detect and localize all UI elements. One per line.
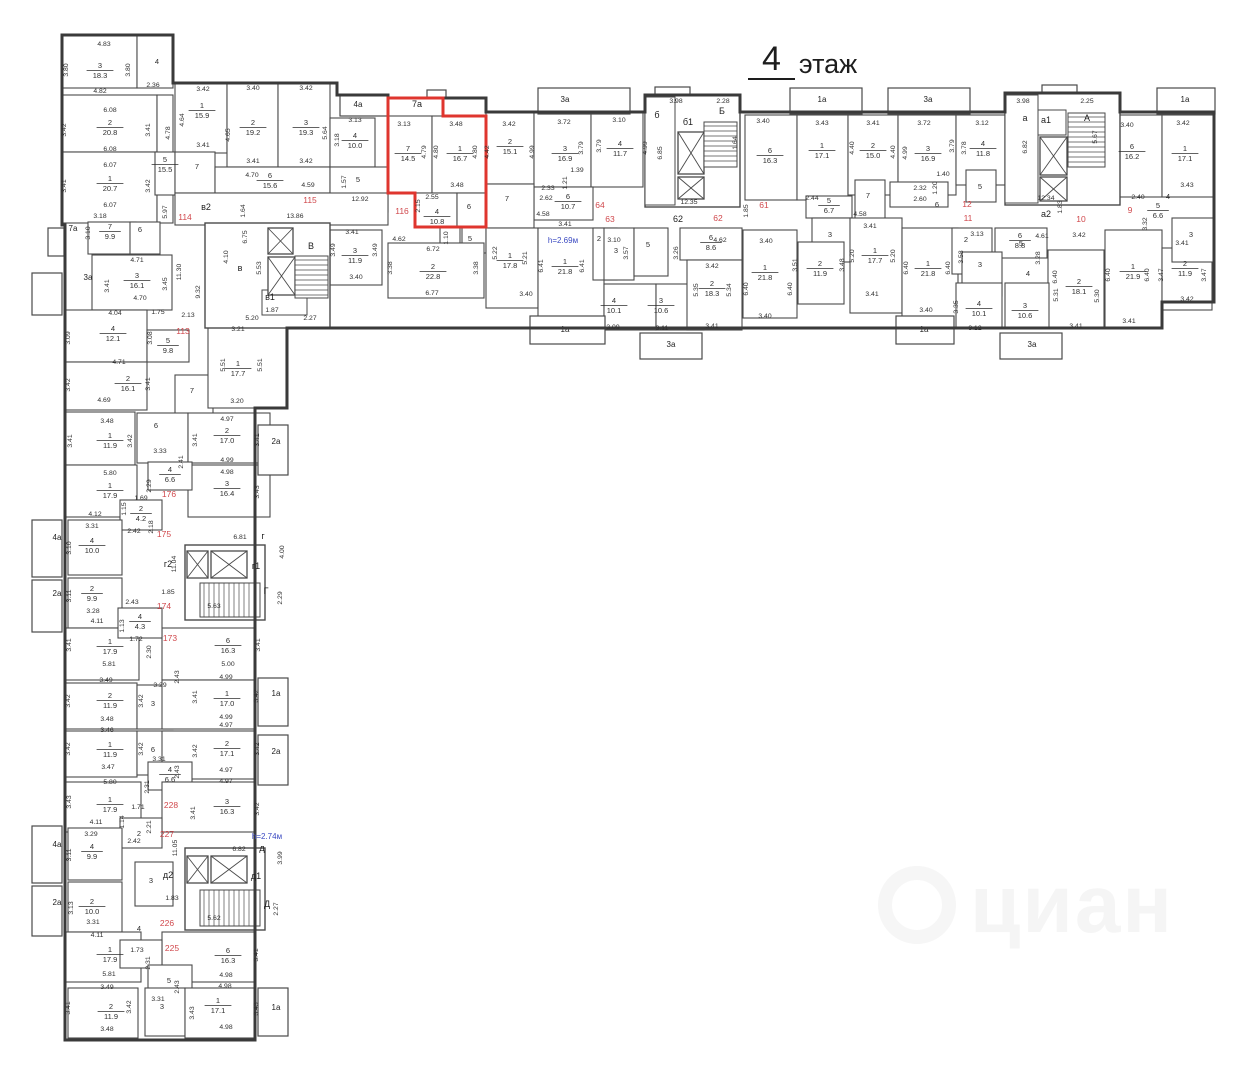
svg-text:4: 4 — [137, 924, 141, 933]
dimension-label: 3.10 — [66, 541, 73, 554]
dimension-label: 3.41 — [863, 223, 876, 230]
apartment-number: 64 — [595, 200, 605, 210]
svg-text:3: 3 — [151, 699, 155, 708]
room — [175, 375, 213, 417]
svg-text:16.3: 16.3 — [763, 156, 778, 165]
svg-text:4.3: 4.3 — [135, 622, 145, 631]
svg-text:4: 4 — [353, 131, 357, 140]
dimension-label: 3.41 — [1069, 323, 1082, 330]
room — [443, 98, 486, 116]
dimension-label: 4.40 — [890, 145, 897, 158]
svg-text:4а: 4а — [53, 840, 62, 849]
dimension-label: 3.40 — [519, 291, 532, 298]
dimension-label: 5.62 — [207, 915, 220, 922]
svg-text:16.3: 16.3 — [221, 646, 236, 655]
svg-text:15.9: 15.9 — [195, 111, 210, 120]
dimension-label: 1.75 — [151, 309, 164, 316]
svg-text:4: 4 — [1026, 269, 1030, 278]
dimension-label: 6.07 — [103, 202, 116, 209]
dimension-label: 2.43 — [125, 599, 138, 606]
svg-text:2: 2 — [139, 504, 143, 513]
dimension-label: 3.80 — [125, 63, 132, 76]
dimension-label: 2.41 — [178, 455, 185, 468]
dimension-label: 6.40 — [903, 261, 910, 274]
dimension-label: 3.49 — [330, 243, 337, 256]
dimension-label: 1.71 — [131, 804, 144, 811]
dimension-label: 1.21 — [562, 176, 569, 189]
svg-text:4: 4 — [138, 612, 142, 621]
svg-text:1: 1 — [820, 141, 824, 150]
svg-text:3: 3 — [1189, 230, 1193, 239]
dimension-label: 4.99 — [219, 714, 232, 721]
apartment-number: 175 — [157, 529, 171, 539]
dimension-label: 2.31 — [145, 956, 152, 969]
balcony — [538, 88, 630, 114]
dimension-label: 6.41 — [579, 259, 586, 272]
svg-text:3: 3 — [659, 296, 663, 305]
svg-text:16.1: 16.1 — [121, 384, 136, 393]
dimension-label: 2.43 — [174, 980, 181, 993]
svg-text:18.1: 18.1 — [1072, 287, 1087, 296]
dimension-label: 3.11 — [656, 325, 669, 332]
dimension-label: 4.79 — [421, 145, 428, 158]
dimension-label: 3.79 — [949, 139, 956, 152]
svg-text:19.3: 19.3 — [299, 128, 314, 137]
svg-text:6: 6 — [566, 192, 570, 201]
dimension-label: 1.13 — [119, 619, 126, 632]
svg-text:а: а — [1022, 113, 1027, 123]
svg-text:5: 5 — [827, 196, 831, 205]
svg-text:6: 6 — [768, 146, 772, 155]
dimension-label: 3.80 — [63, 63, 70, 76]
dimension-label: 4.97 — [219, 722, 232, 729]
dimension-label: 1.85 — [161, 589, 174, 596]
room-label: 56.6 — [1147, 201, 1169, 220]
dimension-label: 3.41 — [254, 433, 261, 446]
svg-text:1: 1 — [108, 945, 112, 954]
svg-text:2: 2 — [818, 259, 822, 268]
dimension-label: 3.42 — [253, 689, 260, 702]
dimension-label: 3.98 — [1016, 98, 1029, 105]
dimension-label: 3.58 — [958, 250, 965, 263]
dimension-label: 6.40 — [1105, 268, 1112, 281]
dimension-label: 3.13 — [397, 121, 410, 128]
dimension-label: 4.82 — [93, 88, 106, 95]
dimension-label: 6.41 — [538, 259, 545, 272]
dimension-label: 5.67 — [1092, 130, 1099, 143]
dimension-label: 1.57 — [341, 175, 348, 188]
dimension-label: 3.42 — [126, 1000, 133, 1013]
svg-text:17.9: 17.9 — [103, 491, 118, 500]
svg-text:3а: 3а — [84, 273, 93, 282]
apartment-number: 10 — [1076, 214, 1086, 224]
dimension-label: 4.69 — [97, 397, 110, 404]
room — [457, 193, 486, 227]
svg-text:6: 6 — [935, 200, 939, 209]
dimension-label: 3.41 — [345, 229, 358, 236]
svg-text:1: 1 — [508, 251, 512, 260]
dimension-label: 3.31 — [151, 996, 164, 1003]
svg-text:7: 7 — [406, 144, 410, 153]
svg-text:11.9: 11.9 — [104, 1012, 118, 1021]
svg-text:10.6: 10.6 — [654, 306, 669, 315]
dimension-label: 3.28 — [1035, 251, 1042, 264]
svg-text:2: 2 — [90, 897, 94, 906]
dimension-label: 3.79 — [578, 141, 585, 154]
svg-text:д1: д1 — [251, 871, 261, 881]
svg-text:17.1: 17.1 — [1178, 154, 1193, 163]
dimension-label: 4.11 — [90, 819, 103, 826]
dimension-label: 4.40 — [849, 141, 856, 154]
dimension-label: 2.55 — [425, 194, 438, 201]
dimension-label: 3.42 — [502, 121, 515, 128]
svg-text:7а: 7а — [69, 224, 78, 233]
svg-text:18.3: 18.3 — [93, 71, 108, 80]
dimension-label: 2.28 — [716, 98, 729, 105]
svg-text:4: 4 — [981, 139, 985, 148]
dimension-label: 1.73 — [130, 947, 143, 954]
dimension-label: 3.41 — [866, 120, 879, 127]
dimension-label: 3.40 — [349, 274, 362, 281]
cian-logo-icon — [878, 866, 956, 944]
dimension-label: 3.21 — [231, 326, 244, 333]
dimension-label: 3.41 — [253, 948, 260, 961]
dimension-label: 2.44 — [805, 195, 818, 202]
dimension-label: 2.42 — [127, 528, 140, 535]
svg-text:2а: 2а — [272, 747, 281, 756]
svg-text:2: 2 — [225, 739, 229, 748]
svg-text:4а: 4а — [53, 533, 62, 542]
dimension-label: 3.72 — [557, 119, 570, 126]
svg-text:17.1: 17.1 — [220, 749, 235, 758]
dimension-label: 13.86 — [286, 213, 303, 220]
dimension-label: 3.41 — [145, 123, 152, 136]
svg-text:1: 1 — [873, 246, 877, 255]
dimension-label: 3.51 — [792, 258, 799, 271]
dimension-label: 11.30 — [176, 264, 183, 281]
dimension-label: 2.33 — [541, 185, 554, 192]
dimension-label: 3.40 — [758, 313, 771, 320]
svg-text:17.7: 17.7 — [868, 256, 883, 265]
dimension-label: 4.04 — [108, 310, 121, 317]
balcony — [258, 735, 288, 785]
svg-text:9.8: 9.8 — [163, 346, 173, 355]
apartment-number: 63 — [605, 214, 615, 224]
dimension-label: 3.78 — [961, 141, 968, 154]
dimension-label: 2.60 — [913, 196, 926, 203]
dimension-label: 3.99 — [277, 851, 284, 864]
svg-text:4: 4 — [618, 139, 622, 148]
svg-text:2: 2 — [1077, 277, 1081, 286]
svg-text:2а: 2а — [272, 437, 281, 446]
svg-text:б1: б1 — [683, 117, 693, 127]
svg-text:16.4: 16.4 — [220, 489, 235, 498]
svg-text:1а: 1а — [272, 1003, 281, 1012]
dimension-label: 4.78 — [165, 126, 172, 139]
svg-text:3а: 3а — [561, 95, 570, 104]
dimension-label: 2.43 — [174, 670, 181, 683]
svg-text:5: 5 — [468, 234, 472, 243]
svg-text:62: 62 — [673, 214, 683, 224]
svg-text:3а: 3а — [924, 95, 933, 104]
dimension-label: 3.26 — [673, 246, 680, 259]
dimension-label: 3.10 — [612, 117, 625, 124]
svg-text:1а: 1а — [818, 95, 827, 104]
dimension-label: 3.10 — [85, 226, 92, 239]
dimension-label: 6.85 — [657, 146, 664, 159]
dimension-label: 5.21 — [522, 251, 529, 264]
dimension-label: 5.20 — [890, 249, 897, 262]
dimension-label: 5.64 — [322, 126, 329, 139]
dimension-label: 12.35 — [680, 199, 697, 206]
apartment-number: 227 — [160, 829, 174, 839]
dimension-label: 3.41 — [196, 142, 209, 149]
dimension-label: 5.80 — [103, 779, 116, 786]
svg-text:г1: г1 — [252, 561, 260, 571]
dimension-label: 3.33 — [153, 448, 166, 455]
dimension-label: 1.64 — [732, 136, 739, 149]
floor-number: 4 — [748, 42, 795, 80]
svg-text:15.1: 15.1 — [503, 147, 518, 156]
svg-text:5: 5 — [356, 175, 360, 184]
apartment-number: 114 — [178, 212, 192, 222]
svg-text:6.6: 6.6 — [1153, 211, 1163, 220]
balcony — [32, 273, 62, 315]
dimension-label: 6.75 — [242, 230, 249, 243]
dimension-label: 3.49 — [100, 984, 113, 991]
svg-text:10.1: 10.1 — [607, 306, 622, 315]
dimension-label: 3.42 — [192, 744, 199, 757]
svg-text:1: 1 — [216, 996, 220, 1005]
svg-text:7: 7 — [190, 386, 194, 395]
apartment-number: 113 — [176, 326, 190, 336]
svg-text:А: А — [1084, 113, 1090, 123]
dimension-label: 4.99 — [642, 141, 649, 154]
dimension-label: 1.83 — [165, 895, 178, 902]
svg-text:в2: в2 — [201, 202, 211, 212]
svg-text:2: 2 — [251, 118, 255, 127]
dimension-label: 3.47 — [1201, 268, 1208, 281]
dimension-label: 1.64 — [240, 204, 247, 217]
svg-text:10.6: 10.6 — [1018, 311, 1033, 320]
room — [162, 680, 255, 729]
svg-text:16.1: 16.1 — [130, 281, 145, 290]
balcony — [32, 826, 62, 883]
dimension-label: 5.20 — [849, 249, 856, 262]
dimension-label: 3.31 — [152, 756, 165, 763]
dimension-label: 3.42 — [138, 694, 145, 707]
dimension-label: 3.18 — [93, 213, 106, 220]
apartment-number: 116 — [395, 206, 409, 216]
svg-text:4: 4 — [435, 207, 439, 216]
dimension-label: 3.48 — [100, 716, 113, 723]
dimension-label: 3.47 — [1158, 268, 1165, 281]
dimension-label: 5.81 — [102, 661, 115, 668]
dimension-label: 1.87 — [265, 307, 278, 314]
dimension-label: 4.11 — [91, 618, 104, 625]
dimension-label: 6.08 — [103, 146, 116, 153]
dimension-label: 3.41 — [1175, 240, 1188, 247]
svg-text:3а: 3а — [1028, 340, 1037, 349]
dimension-label: 3.09 — [65, 331, 72, 344]
room — [175, 152, 215, 193]
svg-text:7: 7 — [505, 194, 509, 203]
svg-text:17.0: 17.0 — [220, 699, 235, 708]
apartment-number: 115 — [303, 195, 317, 205]
svg-text:5: 5 — [163, 155, 167, 164]
dimension-label: 4.70 — [245, 172, 258, 179]
svg-text:10.0: 10.0 — [348, 141, 363, 150]
dimension-label: 4.00 — [279, 545, 286, 558]
dimension-label: 3.29 — [153, 682, 166, 689]
room — [850, 218, 902, 313]
dimension-label: 3.41 — [1122, 318, 1135, 325]
svg-text:1: 1 — [563, 257, 567, 266]
dimension-label: 3.41 — [705, 323, 718, 330]
svg-text:1: 1 — [108, 740, 112, 749]
dimension-label: 12.92 — [351, 196, 368, 203]
svg-text:11.9: 11.9 — [103, 441, 117, 450]
balcony — [258, 425, 288, 475]
dimension-label: 3.42 — [254, 802, 261, 815]
svg-text:17.7: 17.7 — [231, 369, 246, 378]
svg-text:2: 2 — [137, 829, 141, 838]
room — [120, 940, 162, 968]
svg-text:10.7: 10.7 — [561, 202, 576, 211]
svg-text:В: В — [308, 241, 314, 251]
svg-text:3: 3 — [135, 271, 139, 280]
dimension-label: 3.10 — [607, 237, 620, 244]
dimension-label: 4.97 — [219, 767, 232, 774]
svg-text:17.0: 17.0 — [220, 436, 235, 445]
dimension-label: 3.57 — [623, 246, 630, 259]
svg-text:1а: 1а — [1181, 95, 1190, 104]
dimension-label: 11.05 — [172, 840, 179, 857]
svg-text:9.9: 9.9 — [87, 594, 97, 603]
svg-text:4: 4 — [155, 57, 159, 66]
svg-text:15.6: 15.6 — [263, 181, 278, 190]
svg-text:16.9: 16.9 — [558, 154, 573, 163]
svg-text:9.9: 9.9 — [105, 232, 115, 241]
svg-text:1: 1 — [108, 431, 112, 440]
svg-text:17.8: 17.8 — [503, 261, 518, 270]
svg-text:21.9: 21.9 — [1126, 272, 1141, 281]
dimension-label: 4.71 — [130, 257, 143, 264]
dimension-label: 6.82 — [1022, 140, 1029, 153]
svg-text:6: 6 — [226, 636, 230, 645]
svg-text:9.9: 9.9 — [87, 852, 97, 861]
dimension-label: 5.51 — [257, 358, 264, 371]
dimension-label: 3.42 — [65, 694, 72, 707]
svg-text:16.9: 16.9 — [921, 154, 936, 163]
svg-text:2: 2 — [710, 279, 714, 288]
ceiling-height-label: h=2.69м — [548, 236, 578, 245]
dimension-label: 3.40 — [1120, 122, 1133, 129]
dimension-label: 5.53 — [256, 261, 263, 274]
dimension-label: 4.62 — [392, 236, 405, 243]
floor-word: этаж — [799, 51, 857, 80]
dimension-label: 6.08 — [103, 107, 116, 114]
svg-text:3а: 3а — [667, 340, 676, 349]
dimension-label: 4.58 — [536, 211, 549, 218]
dimension-label: 3.32 — [1142, 217, 1149, 230]
dimension-label: 3.42 — [1180, 296, 1193, 303]
staircase-icon — [295, 256, 328, 298]
dimension-label: 3.48 — [839, 258, 846, 271]
svg-text:17.1: 17.1 — [815, 151, 830, 160]
svg-text:4: 4 — [1166, 192, 1170, 201]
svg-text:6.6: 6.6 — [165, 475, 175, 484]
floor-title: 4 этаж — [748, 42, 857, 80]
svg-text:6: 6 — [268, 171, 272, 180]
dimension-label: 3.42 — [65, 742, 72, 755]
svg-text:1: 1 — [763, 263, 767, 272]
svg-text:2: 2 — [597, 234, 601, 243]
svg-text:6: 6 — [154, 421, 158, 430]
dimension-label: 3.49 — [99, 677, 112, 684]
dimension-label: 4.12 — [88, 511, 101, 518]
dimension-label: 5.81 — [102, 971, 115, 978]
svg-text:2: 2 — [90, 584, 94, 593]
dimension-label: 4.59 — [301, 182, 314, 189]
svg-text:11.9: 11.9 — [813, 269, 827, 278]
apartment-number: 225 — [165, 943, 179, 953]
svg-text:20.7: 20.7 — [103, 184, 118, 193]
dimension-label: 3.42 — [299, 85, 312, 92]
dimension-label: 1.20 — [932, 181, 939, 194]
dimension-label: 3.40 — [919, 307, 932, 314]
apartment-number: 61 — [759, 200, 769, 210]
svg-text:6.7: 6.7 — [824, 206, 834, 215]
svg-text:7а: 7а — [412, 99, 422, 109]
dimension-label: 3.49 — [372, 243, 379, 256]
svg-text:21.8: 21.8 — [921, 269, 936, 278]
svg-text:16.7: 16.7 — [453, 154, 468, 163]
svg-text:16.3: 16.3 — [221, 956, 236, 965]
dimension-label: 9.32 — [195, 285, 202, 298]
dimension-label: 3.41 — [192, 433, 199, 446]
dimension-label: 4.65 — [225, 128, 232, 141]
dimension-label: 3.38 — [387, 261, 394, 274]
svg-text:3: 3 — [563, 144, 567, 153]
dimension-label: 1.72 — [129, 636, 142, 643]
svg-text:3: 3 — [1023, 301, 1027, 310]
dimension-label: 2.40 — [1131, 194, 1144, 201]
dimension-label: 3.79 — [596, 139, 603, 152]
svg-text:5: 5 — [646, 240, 650, 249]
svg-text:4: 4 — [168, 465, 172, 474]
svg-text:1: 1 — [458, 144, 462, 153]
dimension-label: 6.81 — [233, 534, 246, 541]
dimension-label: 3.41 — [67, 434, 74, 447]
dimension-label: 3.28 — [86, 608, 99, 615]
dimension-label: 2.42 — [127, 838, 140, 845]
svg-text:в1: в1 — [265, 292, 275, 302]
dimension-label: 1.10 — [443, 231, 450, 244]
dimension-label: 3.42 — [145, 179, 152, 192]
svg-text:2: 2 — [109, 1002, 113, 1011]
dimension-label: 3.42 — [65, 378, 72, 391]
apartment-number: 174 — [157, 601, 171, 611]
svg-text:в: в — [238, 263, 243, 273]
dimension-label: 3.41 — [190, 806, 197, 819]
dimension-label: 3.47 — [101, 764, 114, 771]
svg-text:7: 7 — [108, 222, 112, 231]
dimension-label: 3.12 — [975, 120, 988, 127]
svg-text:3: 3 — [225, 479, 229, 488]
dimension-label: 3.40 — [756, 118, 769, 125]
svg-text:11.9: 11.9 — [103, 750, 117, 759]
